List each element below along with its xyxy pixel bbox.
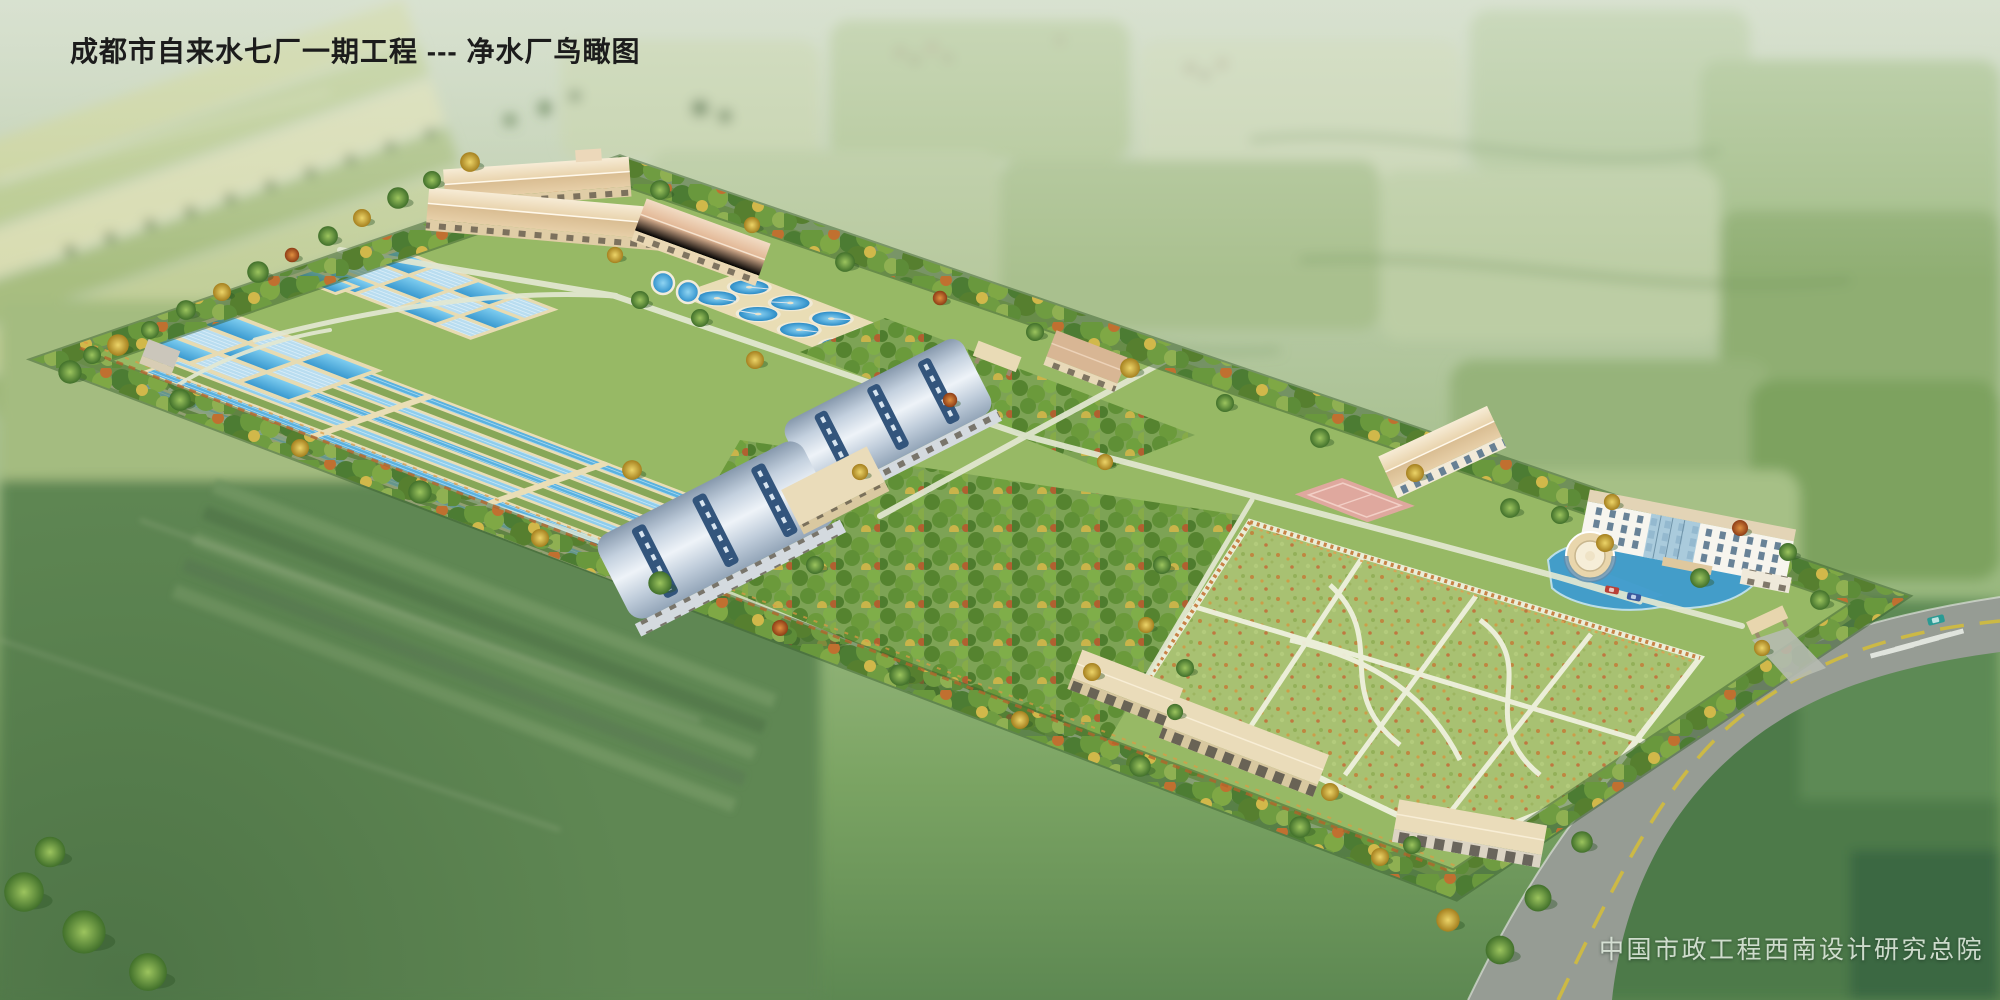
scene	[0, 0, 2000, 1000]
design-institute-credit: 中国市政工程西南设计研究总院	[1599, 930, 1984, 966]
page-title: 成都市自来水七厂一期工程 --- 净水厂鸟瞰图	[70, 30, 641, 70]
rendering-canvas: 成都市自来水七厂一期工程 --- 净水厂鸟瞰图 中国市政工程西南设计研究总院	[0, 0, 2000, 1000]
